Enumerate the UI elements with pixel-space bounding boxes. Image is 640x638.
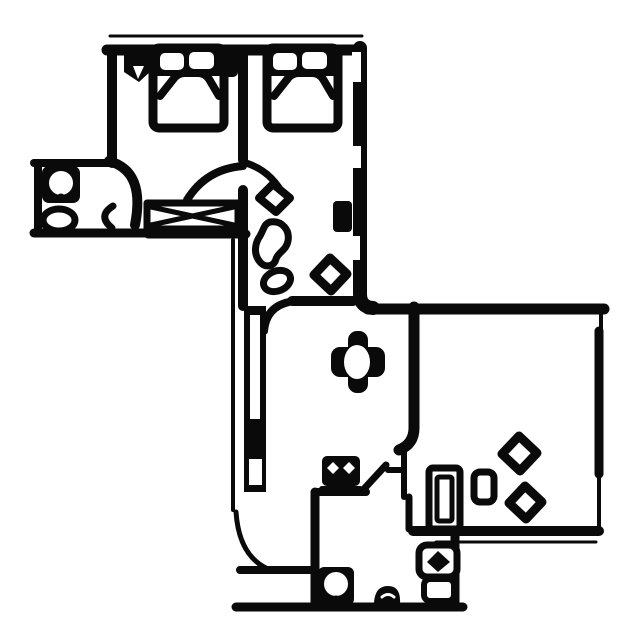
hallway-blob bbox=[260, 266, 293, 295]
wall-bump-radiator bbox=[333, 201, 352, 232]
double-bed-2-icon bbox=[264, 45, 341, 128]
window-gap-2 bbox=[352, 146, 361, 168]
right-wall-upper bbox=[360, 48, 373, 308]
bathroom-upper-door-arc bbox=[105, 206, 113, 228]
stove-body bbox=[322, 456, 360, 486]
wall-window-gap bbox=[249, 459, 262, 485]
dining-table-icon bbox=[331, 331, 385, 393]
table-top bbox=[344, 345, 370, 379]
bed2-pillow-left bbox=[273, 53, 297, 70]
sink-upper-icon bbox=[43, 209, 75, 231]
right-room-furniture bbox=[429, 436, 542, 529]
stool-diamond-icon bbox=[314, 258, 347, 291]
stool-diamond-icon bbox=[259, 184, 290, 212]
wardrobe-x-icon bbox=[147, 203, 238, 229]
stool-diamond-icon bbox=[502, 436, 537, 471]
bathroom-lower-door-diagonal bbox=[363, 465, 386, 490]
bathroom-upper-fixtures bbox=[42, 166, 80, 231]
bed1-pillow-left bbox=[160, 53, 184, 70]
wall-cavity-gap bbox=[250, 315, 260, 419]
corner-chamfer bbox=[264, 302, 289, 331]
entrance-door-arc bbox=[236, 512, 268, 569]
washbasin-cabinet bbox=[424, 579, 454, 601]
radiator-inner bbox=[437, 477, 452, 521]
bedroom1-door-arc bbox=[187, 166, 243, 200]
stool-diamond-icon bbox=[509, 486, 542, 519]
floor-plan-canvas: Black-and-white apartment floor plan dra… bbox=[0, 0, 640, 638]
bed2-pillow-right bbox=[302, 52, 327, 69]
wall-b-room-divider bbox=[399, 307, 414, 450]
window-gap-1 bbox=[352, 52, 361, 82]
plant-bean-icon bbox=[255, 222, 288, 266]
bed1-pillow-right bbox=[189, 52, 214, 69]
bathroom-upper-door-band bbox=[109, 161, 137, 225]
stove-icon bbox=[322, 456, 360, 489]
toilet-lower-bowl bbox=[324, 572, 348, 596]
bathroom-lower-fixtures bbox=[318, 545, 457, 605]
floor-plan-svg: Black-and-white apartment floor plan dra… bbox=[0, 0, 640, 638]
window-gap-3 bbox=[351, 236, 360, 260]
hallway-decor bbox=[255, 184, 347, 296]
double-bed-1-icon bbox=[150, 45, 227, 128]
side-table bbox=[474, 472, 494, 502]
toilet-upper-bowl bbox=[49, 171, 73, 195]
